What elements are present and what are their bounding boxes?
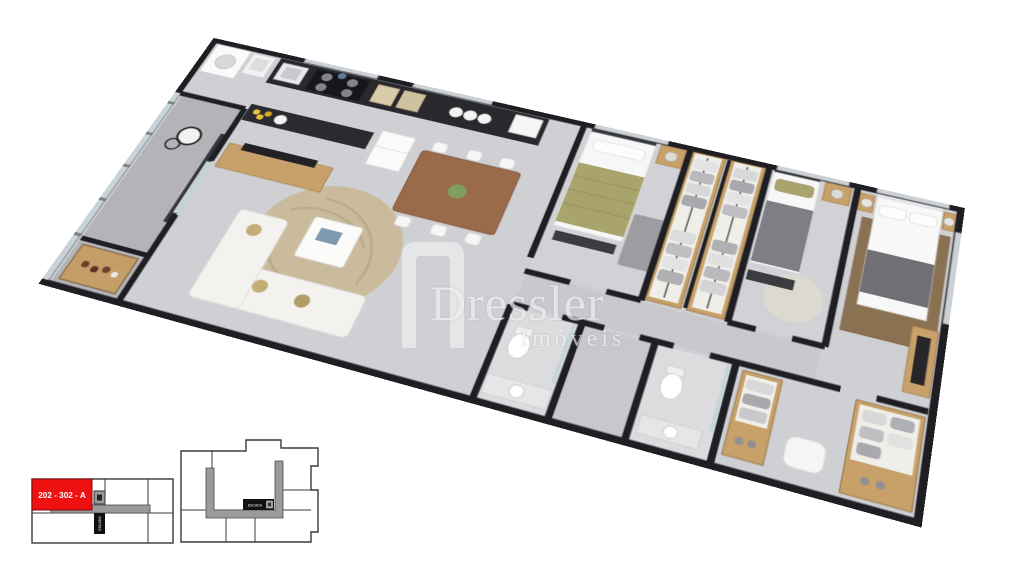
tower-outline bbox=[181, 440, 318, 542]
stairs-label: ESCADA bbox=[248, 503, 263, 507]
apartment-floorplan bbox=[39, 38, 965, 528]
stairs-label: ESCADA bbox=[98, 516, 102, 531]
floorplan-render-page: Dressler Imóveis 202 - 302 - A ESCADA bbox=[0, 0, 1024, 575]
keyplan-tower: ESCADA bbox=[180, 438, 330, 560]
elevator-car-icon bbox=[97, 495, 102, 501]
unit-label: 202 - 302 - A bbox=[38, 491, 86, 500]
elevator-car-icon bbox=[268, 503, 271, 506]
keyplan-floor: 202 - 302 - A ESCADA bbox=[28, 450, 175, 547]
